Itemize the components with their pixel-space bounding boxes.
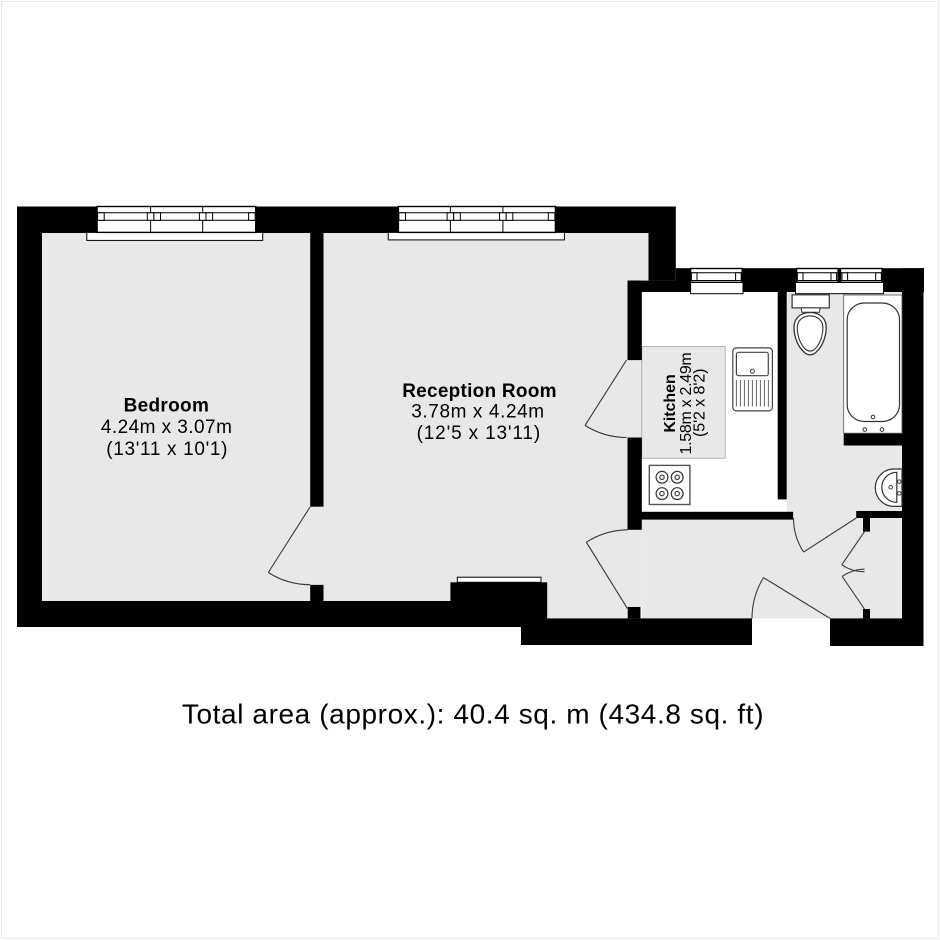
svg-text:(13'11 x 10'1): (13'11 x 10'1) bbox=[106, 439, 228, 460]
svg-text:(5'2 x 8'2): (5'2 x 8'2) bbox=[692, 369, 709, 437]
svg-text:Kitchen: Kitchen bbox=[662, 374, 679, 432]
svg-text:Reception Room: Reception Room bbox=[402, 381, 557, 402]
svg-text:Total area (approx.): 40.4 sq.: Total area (approx.): 40.4 sq. m (434.8 … bbox=[182, 699, 764, 730]
svg-text:3.78m x 4.24m: 3.78m x 4.24m bbox=[411, 402, 544, 423]
svg-text:(12'5 x 13'11): (12'5 x 13'11) bbox=[417, 423, 541, 444]
svg-text:4.24m x 3.07m: 4.24m x 3.07m bbox=[101, 417, 233, 438]
svg-text:Bedroom: Bedroom bbox=[124, 396, 210, 417]
